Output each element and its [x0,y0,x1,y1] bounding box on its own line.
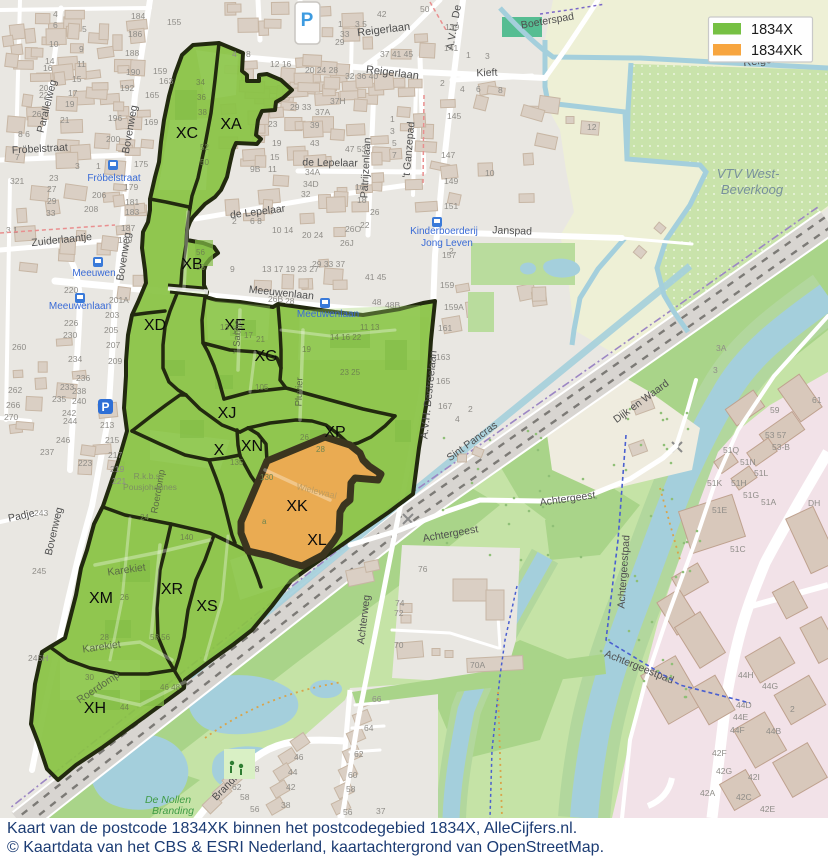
svg-text:187: 187 [121,223,135,233]
svg-text:62: 62 [232,782,242,792]
svg-text:58: 58 [346,784,356,794]
svg-text:44: 44 [288,767,298,777]
svg-text:2: 2 [449,246,454,256]
svg-text:8: 8 [498,85,503,95]
svg-text:58 56: 58 56 [150,633,171,642]
svg-text:Branding: Branding [152,805,194,817]
svg-text:33: 33 [46,208,56,218]
svg-text:44F: 44F [730,725,745,735]
svg-text:13 17 19 23 27: 13 17 19 23 27 [262,264,319,274]
svg-text:41 45: 41 45 [365,272,387,282]
svg-text:XK: XK [286,498,308,515]
svg-text:26J: 26J [340,238,354,248]
svg-text:70A: 70A [470,660,485,670]
svg-text:14 16 22: 14 16 22 [330,333,362,342]
svg-text:42A: 42A [700,788,715,798]
svg-text:15: 15 [72,74,82,84]
svg-text:37H: 37H [330,96,346,106]
svg-text:Pousjohannes: Pousjohannes [123,482,177,492]
svg-text:76: 76 [418,564,428,574]
svg-text:223: 223 [78,458,92,468]
svg-text:36: 36 [197,93,206,102]
svg-text:20 24 28: 20 24 28 [305,65,338,75]
svg-text:34: 34 [196,78,205,87]
svg-text:XS: XS [196,598,217,615]
svg-text:XH: XH [84,700,106,717]
svg-text:1834X: 1834X [751,22,793,38]
svg-text:51C: 51C [730,544,746,554]
svg-text:42E: 42E [760,804,775,814]
svg-text:50: 50 [420,4,430,14]
svg-text:Pluvier: Pluvier [293,377,305,406]
svg-text:188: 188 [125,48,139,58]
svg-text:P: P [301,10,314,31]
svg-text:16: 16 [43,63,53,73]
svg-text:240: 240 [72,396,86,406]
svg-text:2: 2 [468,404,473,414]
svg-text:209: 209 [108,356,122,366]
svg-text:181: 181 [125,197,139,207]
svg-text:61: 61 [812,395,822,405]
svg-text:37A: 37A [315,107,330,117]
svg-text:44H: 44H [738,670,754,680]
svg-text:21: 21 [256,335,265,344]
svg-text:44: 44 [120,703,129,712]
svg-text:59: 59 [770,405,780,415]
svg-text:42I: 42I [748,772,760,782]
svg-text:32: 32 [301,189,311,199]
svg-text:245: 245 [32,566,46,576]
svg-text:56: 56 [250,804,260,814]
svg-text:12: 12 [587,122,597,132]
svg-text:215: 215 [105,435,119,445]
svg-text:28: 28 [316,445,325,454]
svg-text:10: 10 [485,168,495,178]
svg-text:XP: XP [324,424,345,441]
svg-text:159A: 159A [444,302,464,312]
svg-text:5: 5 [82,24,87,34]
svg-text:64: 64 [364,723,374,733]
svg-text:37: 37 [376,806,386,816]
svg-text:8: 8 [246,49,251,59]
svg-text:17: 17 [68,88,78,98]
svg-text:XM: XM [89,590,113,607]
svg-text:4: 4 [53,9,58,19]
svg-text:9: 9 [230,264,235,274]
svg-text:20 24: 20 24 [302,230,324,240]
svg-text:47 53: 47 53 [345,144,367,154]
svg-text:262: 262 [8,385,22,395]
svg-text:a: a [262,517,267,526]
svg-text:1834XK: 1834XK [751,43,803,59]
svg-text:26: 26 [370,207,380,217]
svg-text:62: 62 [354,749,364,759]
svg-text:66: 66 [372,694,382,704]
svg-text:235: 235 [52,394,66,404]
svg-text:58: 58 [240,792,250,802]
svg-text:236: 236 [76,373,90,383]
svg-text:201A: 201A [109,295,129,305]
svg-text:203: 203 [105,310,119,320]
svg-text:7: 7 [15,152,20,162]
svg-text:16: 16 [355,182,365,192]
svg-text:53 57: 53 57 [765,430,787,440]
svg-text:44E: 44E [733,712,748,722]
svg-text:58: 58 [196,263,205,272]
svg-text:208: 208 [84,204,98,214]
svg-text:21: 21 [60,115,70,125]
svg-text:12 16: 12 16 [270,59,292,69]
svg-text:32 36 40: 32 36 40 [345,71,378,81]
svg-text:175: 175 [134,159,148,169]
svg-text:29 33 37: 29 33 37 [312,259,345,269]
svg-text:51Q: 51Q [723,445,739,455]
svg-text:26: 26 [32,109,42,119]
svg-text:270: 270 [4,412,18,422]
svg-text:Kieft: Kieft [476,67,497,80]
svg-text:53-B: 53-B [772,442,790,452]
svg-text:28: 28 [100,633,109,642]
svg-text:4: 4 [460,84,465,94]
svg-text:10: 10 [49,39,59,49]
svg-text:4: 4 [232,49,237,59]
svg-text:11: 11 [268,164,277,174]
svg-text:230: 230 [63,330,77,340]
svg-text:2: 2 [790,704,795,714]
svg-text:1: 1 [96,161,101,171]
svg-text:192: 192 [120,83,134,93]
svg-text:3 1: 3 1 [6,225,18,235]
svg-text:233: 233 [60,382,74,392]
svg-text:226: 226 [64,318,78,328]
svg-text:167: 167 [438,401,452,411]
svg-text:149: 149 [444,176,458,186]
svg-text:163: 163 [159,76,173,86]
svg-text:23 25: 23 25 [340,368,361,377]
svg-text:56: 56 [196,248,205,257]
svg-text:3: 3 [485,51,490,61]
svg-text:135: 135 [230,458,244,467]
svg-text:3A: 3A [716,343,727,353]
svg-text:DH: DH [808,498,820,508]
svg-text:6 8: 6 8 [250,216,262,226]
svg-text:48: 48 [372,297,382,307]
svg-text:43: 43 [310,138,320,148]
svg-text:44G: 44G [762,681,778,691]
svg-text:38: 38 [281,800,291,810]
svg-text:70: 70 [394,640,404,650]
svg-text:8 6: 8 6 [18,129,30,139]
svg-text:Beverkoog: Beverkoog [721,182,784,197]
svg-text:11: 11 [77,59,86,69]
svg-text:51E: 51E [712,505,727,515]
svg-text:11 13: 11 13 [360,323,380,332]
svg-text:X: X [214,442,225,459]
svg-text:2: 2 [440,78,445,88]
svg-text:29: 29 [47,196,57,206]
svg-text:XL: XL [307,532,327,549]
svg-text:13: 13 [220,323,229,332]
svg-text:159: 159 [153,66,167,76]
svg-text:51K: 51K [707,478,722,488]
svg-text:22: 22 [360,220,370,230]
svg-text:39: 39 [310,120,320,130]
svg-text:51G: 51G [743,490,759,500]
svg-text:44B: 44B [766,726,781,736]
svg-text:30: 30 [85,673,94,682]
svg-text:26O: 26O [345,224,361,234]
svg-text:R.k.b.s.: R.k.b.s. [134,471,163,481]
svg-text:9B: 9B [250,164,261,174]
svg-text:26B: 26B [268,294,283,304]
svg-text:165: 165 [145,90,159,100]
svg-text:234: 234 [68,354,82,364]
svg-text:51N: 51N [740,457,756,467]
svg-text:179: 179 [124,182,138,192]
svg-text:17: 17 [244,331,253,340]
svg-text:60: 60 [348,770,358,780]
svg-text:48B: 48B [385,300,400,310]
svg-text:72: 72 [394,608,404,618]
svg-text:169: 169 [144,117,158,127]
svg-text:19: 19 [65,99,75,109]
svg-text:260: 260 [12,342,26,352]
svg-text:50: 50 [200,158,209,167]
svg-text:15: 15 [232,327,241,336]
svg-text:221: 221 [112,476,126,486]
svg-text:237: 237 [40,447,54,457]
svg-text:155: 155 [167,17,181,27]
svg-text:© Kaartdata van het CBS & ESRI: © Kaartdata van het CBS & ESRI Nederland… [7,839,604,856]
svg-text:26: 26 [120,593,129,602]
svg-text:161: 161 [438,323,452,333]
svg-text:3: 3 [390,126,395,136]
svg-text:7: 7 [392,150,397,160]
svg-text:74: 74 [395,598,405,608]
svg-text:52: 52 [200,143,209,152]
svg-text:266: 266 [6,400,20,410]
svg-text:6: 6 [476,84,481,94]
svg-text:51L: 51L [754,468,768,478]
svg-text:29 33: 29 33 [290,102,312,112]
svg-text:38: 38 [198,108,207,117]
svg-text:1: 1 [466,50,471,60]
svg-text:145: 145 [447,111,461,121]
svg-text:3: 3 [75,161,80,171]
svg-text:28: 28 [285,296,295,306]
svg-text:Janspad: Janspad [492,224,532,237]
svg-text:Jong Leven: Jong Leven [421,238,473,249]
svg-text:VTV West-: VTV West- [717,166,780,181]
svg-text:Kaart van de postcode 1834XK b: Kaart van de postcode 1834XK binnen het … [7,820,577,837]
svg-text:XA: XA [220,116,242,133]
svg-text:Meeuwen: Meeuwen [72,268,115,279]
svg-text:'t Santje: 't Santje [231,320,243,354]
svg-text:33: 33 [340,29,350,39]
svg-text:19: 19 [272,138,282,148]
svg-text:42: 42 [286,782,296,792]
svg-text:42G: 42G [716,766,732,776]
svg-text:23: 23 [268,119,278,129]
svg-text:207: 207 [106,340,120,350]
svg-text:1: 1 [338,19,343,29]
svg-text:1: 1 [390,114,395,124]
svg-text:147: 147 [441,150,455,160]
svg-text:34A: 34A [305,167,320,177]
svg-text:205: 205 [104,325,118,335]
svg-text:139: 139 [445,22,459,32]
svg-text:26: 26 [300,433,309,442]
svg-text:15: 15 [270,152,280,162]
svg-text:P: P [101,400,109,414]
svg-text:219: 219 [110,464,124,474]
svg-text:245H: 245H [28,653,48,663]
svg-text:244: 244 [63,416,77,426]
svg-text:3 5: 3 5 [355,19,367,29]
svg-text:151: 151 [444,201,458,211]
svg-text:130: 130 [260,473,274,482]
svg-text:3: 3 [713,365,718,375]
svg-text:23: 23 [49,173,59,183]
svg-text:XD: XD [144,317,166,334]
svg-text:159: 159 [440,280,454,290]
svg-text:51A: 51A [761,497,776,507]
svg-text:246: 246 [56,435,70,445]
svg-text:140: 140 [180,533,194,542]
svg-text:46: 46 [294,752,304,762]
svg-text:9: 9 [79,44,84,54]
svg-text:189: 189 [118,235,132,245]
svg-text:XJ: XJ [218,405,237,422]
svg-text:XR: XR [161,581,183,598]
svg-text:213: 213 [100,420,114,430]
svg-text:184: 184 [131,11,145,21]
svg-text:27: 27 [47,184,57,194]
svg-text:183: 183 [125,207,139,217]
svg-text:46 48: 46 48 [160,683,181,692]
svg-text:10 14: 10 14 [272,225,294,235]
svg-text:37 41 45: 37 41 45 [380,49,413,59]
svg-text:XC: XC [176,125,198,142]
svg-text:2: 2 [232,216,237,226]
svg-text:Kinderboerderij: Kinderboerderij [410,226,478,237]
svg-text:321: 321 [10,176,24,186]
svg-text:6: 6 [53,20,58,30]
svg-text:196: 196 [108,113,122,123]
svg-text:18: 18 [357,195,367,205]
svg-text:34D: 34D [303,179,319,189]
svg-text:186: 186 [128,29,142,39]
svg-text:105: 105 [255,383,269,392]
svg-text:56: 56 [343,807,353,817]
svg-text:51H: 51H [731,478,747,488]
svg-text:42: 42 [377,9,387,19]
svg-text:24: 24 [140,513,149,522]
svg-text:XN: XN [241,438,263,455]
svg-text:XG: XG [254,348,277,365]
svg-text:5: 5 [392,138,397,148]
svg-text:42C: 42C [736,792,752,802]
svg-text:42F: 42F [712,748,727,758]
svg-text:165: 165 [436,376,450,386]
svg-text:206: 206 [92,190,106,200]
svg-text:163: 163 [436,352,450,362]
svg-text:217: 217 [108,450,122,460]
svg-text:4: 4 [455,414,460,424]
svg-text:243: 243 [34,508,48,518]
svg-text:141: 141 [444,43,458,53]
svg-text:190: 190 [126,67,140,77]
svg-text:22: 22 [39,90,49,100]
svg-text:Meeuwenlaan: Meeuwenlaan [297,309,359,320]
svg-text:19: 19 [302,345,311,354]
svg-text:200: 200 [106,134,120,144]
